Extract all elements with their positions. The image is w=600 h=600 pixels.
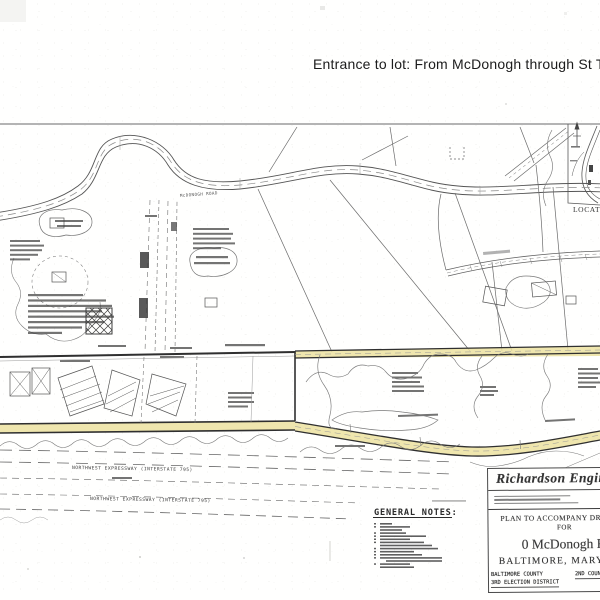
engineering-firm-name: Richardson Engineering bbox=[488, 468, 600, 491]
road-name-label: McDONOGH ROAD bbox=[180, 190, 218, 198]
address-line-smudge bbox=[494, 499, 560, 501]
stream-corridor bbox=[139, 200, 177, 352]
location-map-label: LOCATION MAP bbox=[573, 205, 600, 214]
side-lane bbox=[446, 250, 600, 276]
election-district-label: 3RD ELECTION DISTRICT bbox=[491, 579, 559, 589]
council-district-label: 2ND COUNCIL DISTRICT bbox=[575, 570, 600, 580]
county-district-column: BALTIMORE COUNTY 3RD ELECTION DISTRICT bbox=[491, 570, 575, 588]
title-block: Richardson Engineering PLAN TO ACCOMPANY… bbox=[487, 467, 600, 594]
address-line-smudge bbox=[494, 495, 570, 497]
subject-parcel bbox=[0, 346, 600, 456]
entrance-annotation: Entrance to lot: From McDonogh through S… bbox=[313, 56, 600, 72]
expressway-label-upper: NORTHWEST EXPRESSWAY (INTERSTATE 795) bbox=[72, 465, 193, 473]
parcel-lines bbox=[258, 180, 568, 352]
north-arrow-icon bbox=[573, 122, 581, 147]
general-notes-lines bbox=[374, 523, 442, 568]
proposed-building-hatches bbox=[10, 366, 186, 416]
right-tree-lines bbox=[306, 130, 553, 431]
expressway-label-lower: NORTHWEST EXPRESSWAY (INTERSTATE 795) bbox=[90, 496, 211, 504]
upper-parcel-lines bbox=[269, 127, 574, 270]
location-inset-map: LOCATION MAP bbox=[568, 122, 600, 215]
council-district-column: 2ND COUNCIL DISTRICT bbox=[575, 570, 600, 588]
jurisdiction-row: BALTIMORE COUNTY 3RD ELECTION DISTRICT 2… bbox=[489, 570, 600, 593]
scanned-site-plan-page: Entrance to lot: From McDonogh through S… bbox=[0, 0, 600, 600]
city-state-line: BALTIMORE, MARYLAND bbox=[489, 552, 600, 567]
general-notes-heading: GENERAL NOTES: bbox=[374, 508, 458, 518]
project-address: 0 McDonogh Road bbox=[489, 531, 600, 553]
general-notes: GENERAL NOTES: bbox=[373, 508, 458, 568]
firm-address-lines bbox=[488, 490, 600, 510]
scan-artifacts bbox=[0, 0, 567, 570]
plan-title: PLAN TO ACCOMPANY DRC bbox=[488, 509, 600, 523]
main-road bbox=[0, 135, 600, 221]
address-line-smudge bbox=[494, 502, 578, 505]
